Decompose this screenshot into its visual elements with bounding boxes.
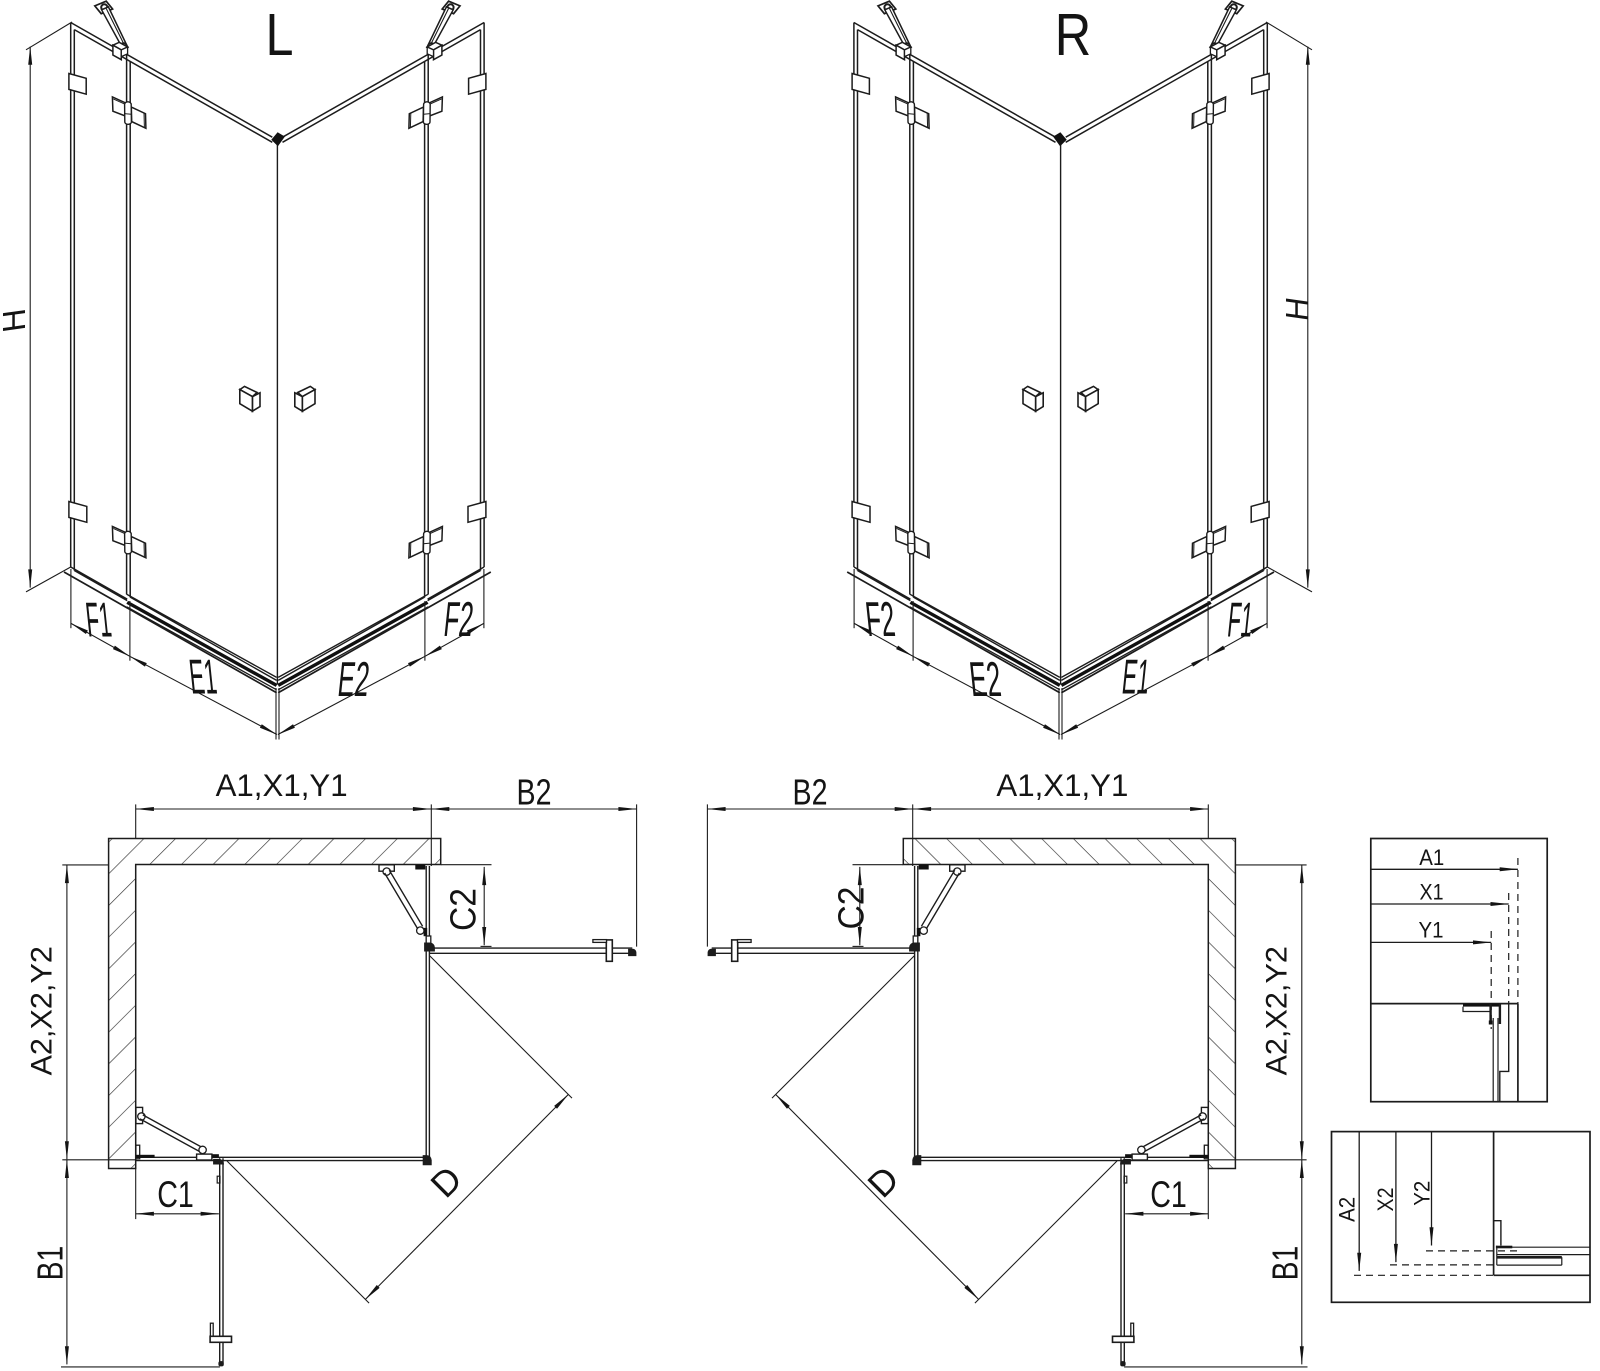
- svg-text:F1: F1: [83, 593, 114, 647]
- svg-text:E1: E1: [1120, 651, 1153, 705]
- svg-text:C2: C2: [442, 888, 483, 931]
- svg-text:A1: A1: [1419, 845, 1444, 870]
- svg-text:Y2: Y2: [1410, 1181, 1435, 1206]
- svg-text:B1: B1: [30, 1246, 71, 1281]
- svg-text:E1: E1: [187, 651, 220, 705]
- svg-text:X1: X1: [1420, 880, 1444, 905]
- svg-text:E2: E2: [335, 653, 372, 707]
- svg-text:D: D: [859, 1158, 906, 1205]
- svg-text:L: L: [266, 2, 294, 68]
- svg-text:R: R: [1055, 2, 1092, 68]
- svg-text:A2,X2,Y2: A2,X2,Y2: [1261, 946, 1294, 1076]
- svg-text:A1,X1,Y1: A1,X1,Y1: [996, 767, 1128, 803]
- svg-text:E2: E2: [967, 653, 1004, 707]
- svg-text:B2: B2: [517, 771, 552, 812]
- svg-text:Y1: Y1: [1419, 918, 1444, 943]
- svg-text:C1: C1: [157, 1174, 194, 1215]
- svg-text:X2: X2: [1373, 1188, 1398, 1212]
- svg-text:A1,X1,Y1: A1,X1,Y1: [216, 767, 348, 803]
- svg-text:F2: F2: [441, 593, 476, 647]
- svg-text:H: H: [1279, 295, 1315, 323]
- svg-text:A2: A2: [1334, 1197, 1359, 1222]
- svg-text:H: H: [0, 307, 32, 335]
- svg-text:C2: C2: [831, 887, 872, 930]
- svg-text:B2: B2: [793, 771, 828, 812]
- svg-text:F1: F1: [1225, 593, 1256, 647]
- svg-text:B1: B1: [1265, 1246, 1306, 1281]
- svg-text:C1: C1: [1150, 1174, 1187, 1215]
- svg-text:A2,X2,Y2: A2,X2,Y2: [26, 946, 59, 1076]
- svg-text:F2: F2: [863, 593, 898, 647]
